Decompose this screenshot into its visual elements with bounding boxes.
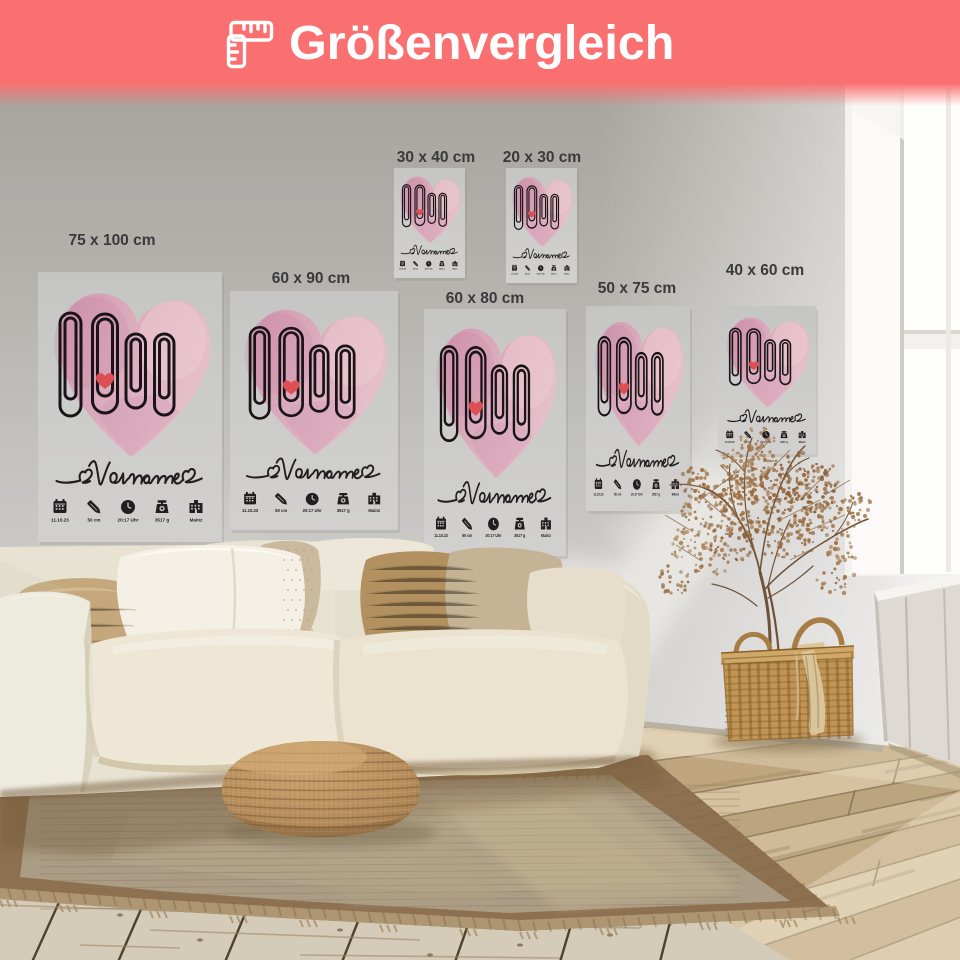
svg-text:60 x 80 cm: 60 x 80 cm [446,290,524,307]
svg-text:60 x 90 cm: 60 x 90 cm [272,270,350,287]
svg-text:50 x 75 cm: 50 x 75 cm [598,280,676,297]
svg-text:75 x 100 cm: 75 x 100 cm [68,232,155,249]
svg-text:30 x 40 cm: 30 x 40 cm [397,149,475,166]
svg-text:20 x 30 cm: 20 x 30 cm [503,149,581,166]
svg-text:Größenvergleich: Größenvergleich [289,16,674,70]
svg-text:40 x 60 cm: 40 x 60 cm [726,262,804,279]
